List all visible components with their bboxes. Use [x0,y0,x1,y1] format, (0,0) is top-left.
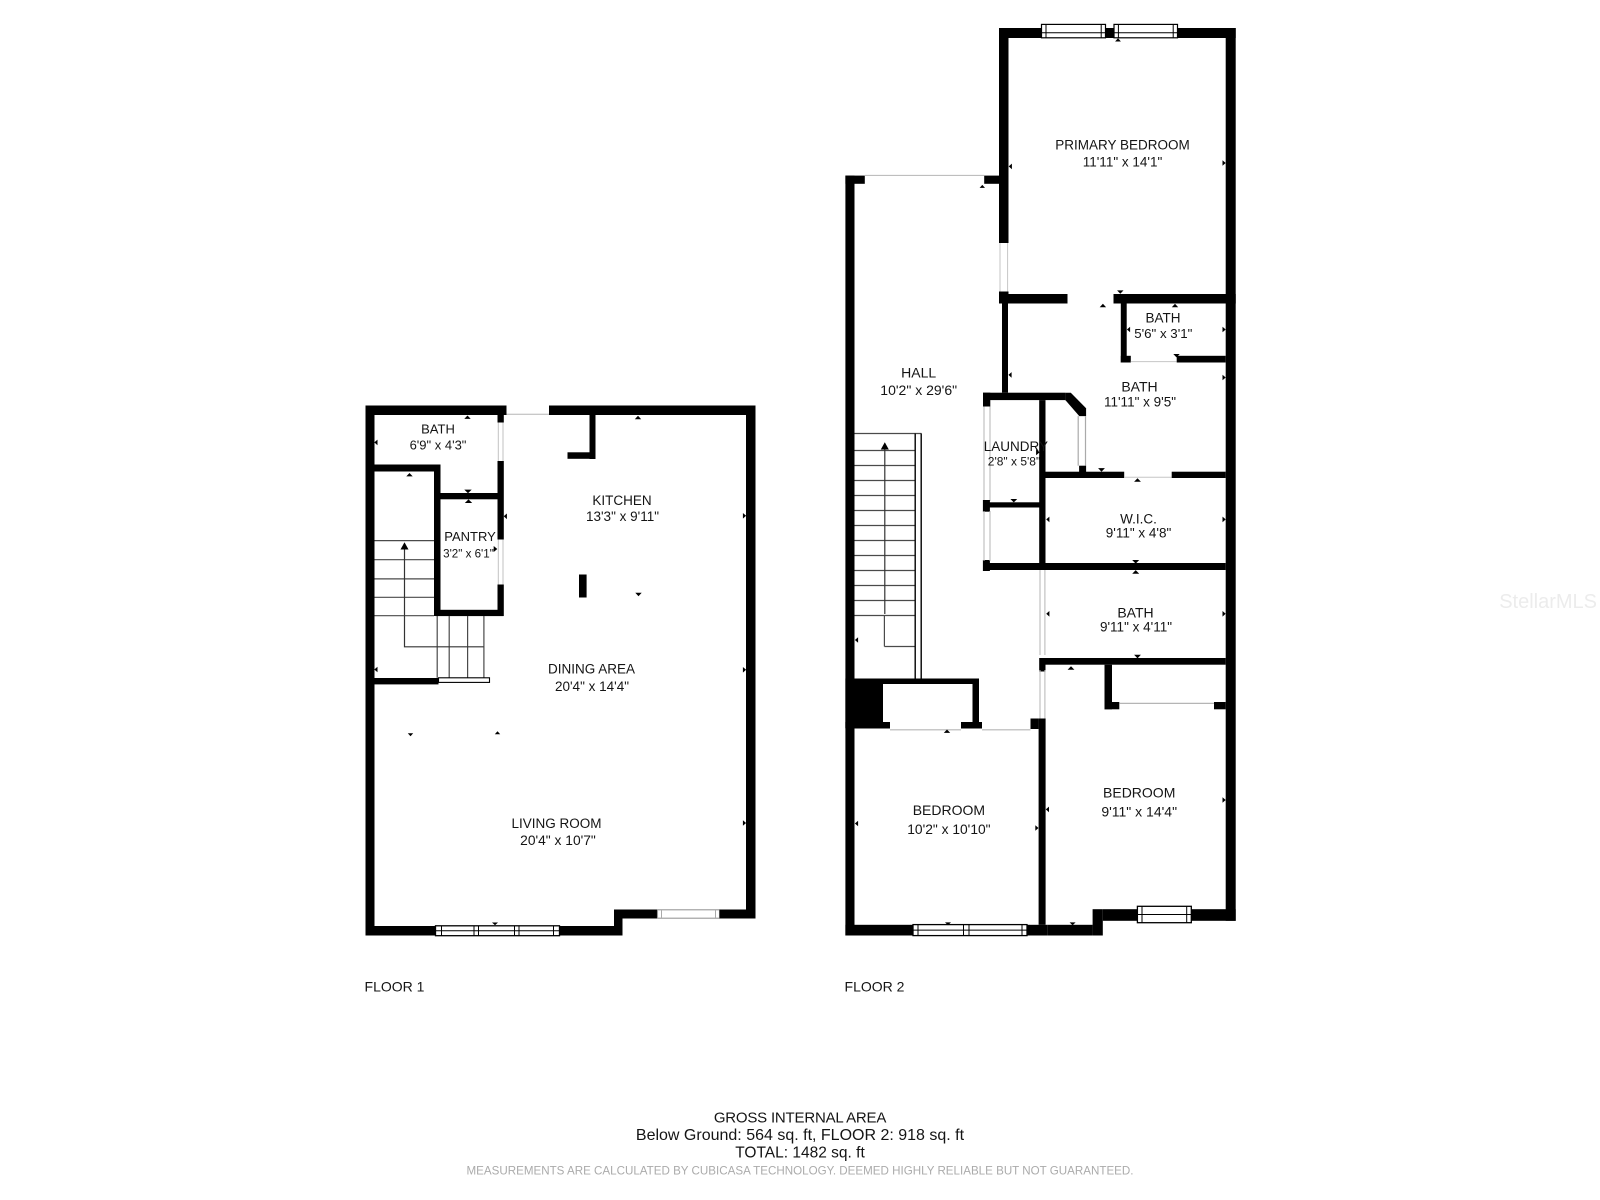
svg-text:20'4" x 14'4": 20'4" x 14'4" [555,679,629,694]
svg-text:9'11" x 4'8": 9'11" x 4'8" [1106,526,1172,541]
svg-text:KITCHEN: KITCHEN [592,493,651,508]
svg-text:TOTAL: 1482 sq. ft: TOTAL: 1482 sq. ft [735,1145,865,1162]
svg-text:Below Ground: 564 sq. ft, FLOO: Below Ground: 564 sq. ft, FLOOR 2: 918 s… [636,1127,965,1144]
svg-text:DINING AREA: DINING AREA [548,661,635,676]
svg-text:13'3" x 9'11": 13'3" x 9'11" [586,509,659,524]
svg-text:BEDROOM: BEDROOM [913,802,985,818]
svg-text:BATH: BATH [421,422,455,437]
svg-text:3'2" x 6'1": 3'2" x 6'1" [443,548,494,561]
svg-text:2'8" x 5'8": 2'8" x 5'8" [988,455,1040,469]
svg-text:10'2" x 29'6": 10'2" x 29'6" [880,382,957,398]
svg-text:FLOOR 1: FLOOR 1 [365,979,425,995]
svg-text:5'6" x 3'1": 5'6" x 3'1" [1134,326,1192,341]
svg-text:20'4" x 10'7": 20'4" x 10'7" [520,833,596,848]
svg-text:GROSS INTERNAL AREA: GROSS INTERNAL AREA [714,1110,887,1127]
svg-text:PANTRY: PANTRY [444,529,496,544]
svg-text:HALL: HALL [901,365,936,381]
svg-text:BATH: BATH [1121,378,1157,394]
svg-text:BEDROOM: BEDROOM [1103,784,1175,800]
svg-text:StellarMLS: StellarMLS [1499,591,1597,613]
svg-text:6'9" x 4'3": 6'9" x 4'3" [410,438,467,453]
svg-text:11'11" x 14'1": 11'11" x 14'1" [1083,154,1163,169]
svg-text:LAUNDRY: LAUNDRY [984,439,1048,454]
svg-text:MEASUREMENTS ARE CALCULATED BY: MEASUREMENTS ARE CALCULATED BY CUBICASA … [466,1165,1133,1178]
svg-text:LIVING ROOM: LIVING ROOM [511,816,601,831]
svg-text:10'2" x 10'10": 10'2" x 10'10" [907,822,990,837]
svg-text:W.I.C.: W.I.C. [1120,511,1157,526]
svg-text:11'11" x 9'5": 11'11" x 9'5" [1104,394,1176,409]
svg-text:PRIMARY BEDROOM: PRIMARY BEDROOM [1055,137,1190,152]
svg-text:BATH: BATH [1117,604,1153,620]
svg-text:9'11" x 14'4": 9'11" x 14'4" [1101,803,1177,819]
svg-text:9'11" x 4'11": 9'11" x 4'11" [1100,620,1172,635]
svg-text:BATH: BATH [1145,311,1180,326]
svg-text:FLOOR 2: FLOOR 2 [845,979,905,995]
